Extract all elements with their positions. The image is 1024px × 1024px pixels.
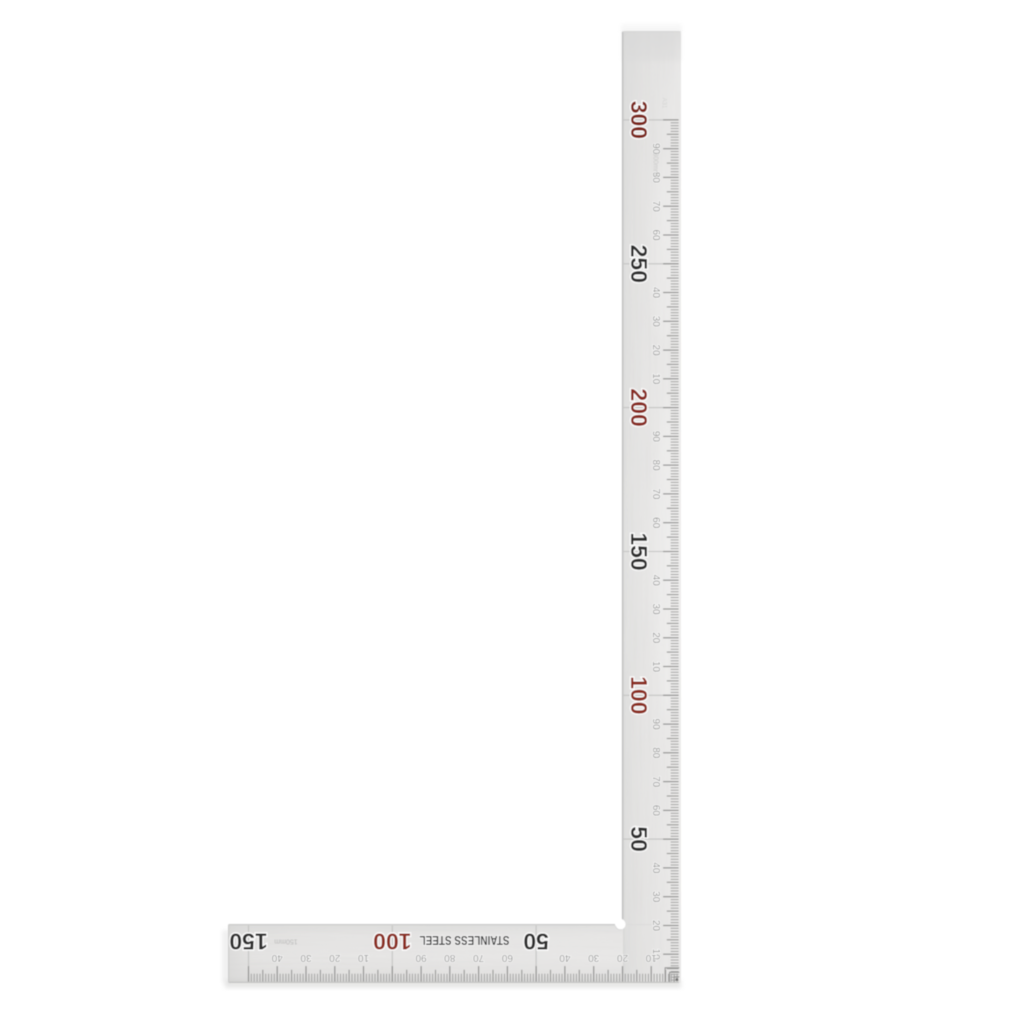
svg-text:80: 80 xyxy=(444,952,456,963)
svg-text:90: 90 xyxy=(650,719,661,731)
svg-text:150mm: 150mm xyxy=(274,938,298,945)
svg-text:40: 40 xyxy=(650,862,661,874)
svg-text:20: 20 xyxy=(650,345,661,357)
svg-text:10: 10 xyxy=(650,373,661,385)
svg-text:60: 60 xyxy=(501,952,513,963)
svg-text:10: 10 xyxy=(358,952,370,963)
svg-text:300mm: 300mm xyxy=(652,152,659,176)
svg-text:70: 70 xyxy=(650,488,661,500)
svg-text:A31: A31 xyxy=(661,98,667,109)
svg-text:200: 200 xyxy=(626,388,652,426)
svg-text:50: 50 xyxy=(523,929,549,955)
svg-text:30: 30 xyxy=(300,952,312,963)
svg-text:300: 300 xyxy=(626,101,652,139)
svg-text:30: 30 xyxy=(650,891,661,903)
svg-text:60: 60 xyxy=(650,229,661,241)
svg-text:10: 10 xyxy=(650,661,661,673)
svg-text:30: 30 xyxy=(650,316,661,328)
svg-text:90: 90 xyxy=(415,952,427,963)
svg-text:50: 50 xyxy=(626,826,652,852)
svg-text:150: 150 xyxy=(626,532,652,570)
svg-text:100: 100 xyxy=(626,676,652,714)
svg-text:70: 70 xyxy=(650,776,661,788)
svg-text:20: 20 xyxy=(650,920,661,932)
svg-text:40: 40 xyxy=(650,575,661,587)
svg-text:70: 70 xyxy=(473,952,485,963)
svg-text:70: 70 xyxy=(650,201,661,213)
svg-text:90: 90 xyxy=(650,431,661,443)
svg-text:60: 60 xyxy=(650,517,661,529)
svg-text:150: 150 xyxy=(229,929,267,955)
svg-text:20: 20 xyxy=(650,632,661,644)
svg-text:40: 40 xyxy=(559,952,571,963)
svg-text:20: 20 xyxy=(617,952,629,963)
svg-text:10: 10 xyxy=(645,952,657,963)
svg-text:100: 100 xyxy=(373,929,411,955)
svg-text:250: 250 xyxy=(626,245,652,283)
svg-text:20: 20 xyxy=(329,952,341,963)
svg-text:80: 80 xyxy=(650,747,661,759)
svg-text:60: 60 xyxy=(650,805,661,817)
svg-text:40: 40 xyxy=(650,287,661,299)
svg-text:30: 30 xyxy=(588,952,600,963)
svg-text:40: 40 xyxy=(271,952,283,963)
svg-text:30: 30 xyxy=(650,603,661,615)
svg-text:STAINLESS STEEL: STAINLESS STEEL xyxy=(419,933,509,948)
svg-text:80: 80 xyxy=(650,460,661,472)
